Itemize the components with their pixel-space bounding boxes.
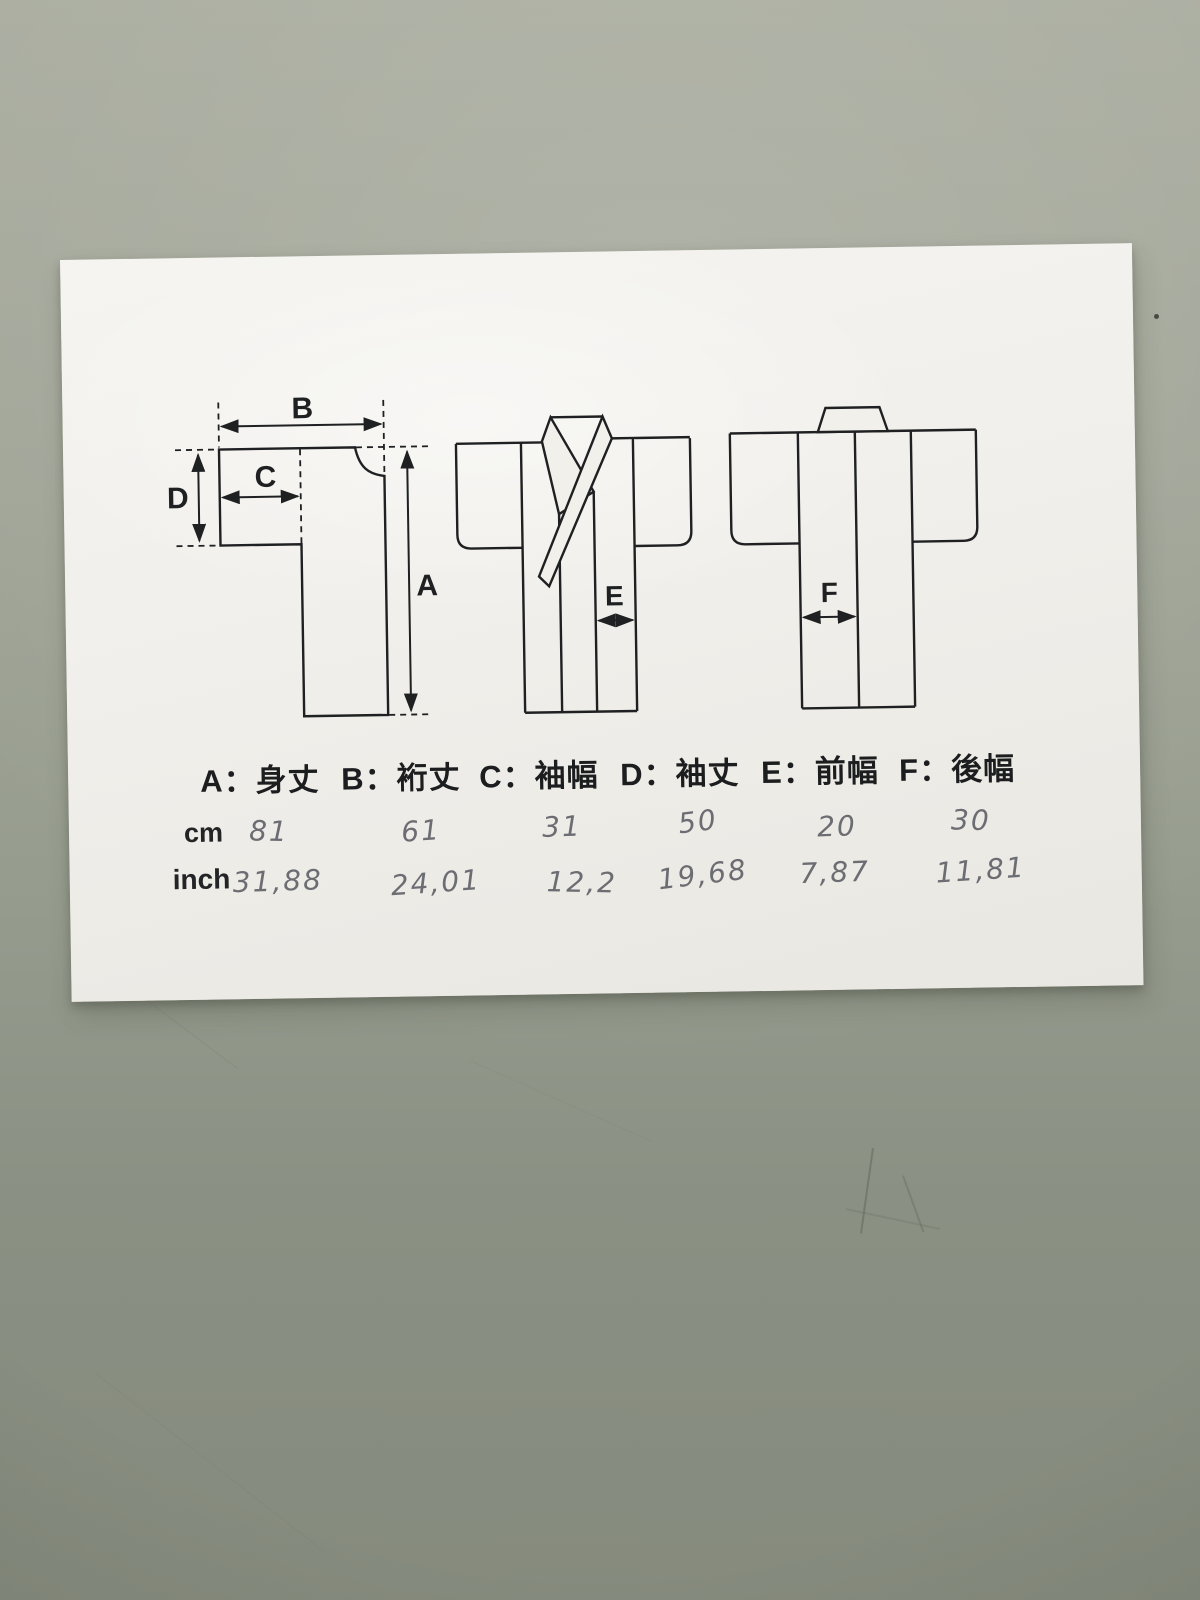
kimono-size-chart-photo: { "photo": { "table_color_top": "#abaea1… xyxy=(0,0,1200,1600)
photo-vignette xyxy=(0,0,1200,1600)
